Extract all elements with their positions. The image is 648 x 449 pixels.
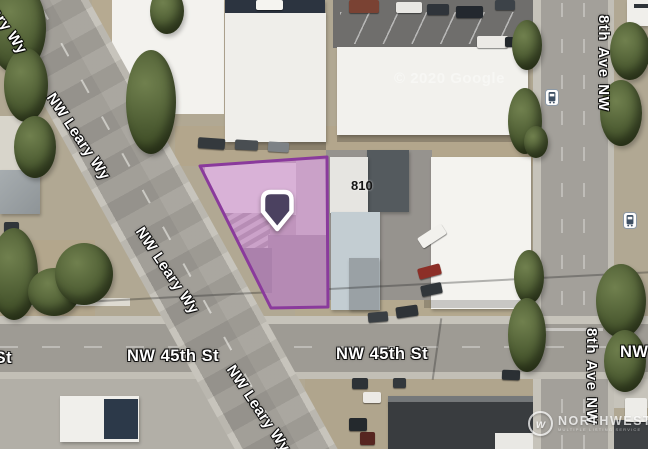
nwmls-monogram-icon: w <box>528 411 553 436</box>
nwmls-watermark: w NORTHWEST MULTIPLE LISTING SERVICE <box>528 411 648 436</box>
car <box>495 0 515 10</box>
car <box>235 139 258 150</box>
car <box>360 432 375 445</box>
street-label-45th-partial: NW 45th St <box>0 349 12 368</box>
google-attribution: © 2020 Google <box>394 70 505 87</box>
tree-canopy <box>596 264 646 338</box>
solar-panels <box>104 399 138 439</box>
street-label-45th: NW 45th St <box>127 347 219 366</box>
street-label-45th: NW 45th St <box>336 345 428 364</box>
nwmls-name: NORTHWEST <box>558 415 648 427</box>
tree-canopy <box>55 243 113 305</box>
car <box>502 370 520 381</box>
truck <box>349 0 379 13</box>
sidewalk <box>0 372 648 379</box>
bus-stop-icon <box>545 89 559 106</box>
car <box>268 141 289 152</box>
building-roof <box>349 258 379 310</box>
car <box>456 6 483 18</box>
building-number-label: 810 <box>351 178 373 193</box>
tree-canopy <box>524 126 548 158</box>
tree-canopy <box>508 298 546 372</box>
car <box>349 418 367 431</box>
car <box>393 378 406 388</box>
tree-canopy <box>610 22 648 80</box>
building-roof-dark <box>367 150 409 212</box>
tree-canopy <box>512 20 542 70</box>
street-label-45th-partial: NW 45th St <box>620 343 648 362</box>
car <box>363 392 381 403</box>
box-truck <box>477 36 508 48</box>
tree-canopy <box>126 50 176 154</box>
car <box>396 2 422 13</box>
car <box>256 0 283 10</box>
tree-canopy <box>514 250 544 304</box>
car <box>427 4 449 15</box>
roof-vent <box>634 4 648 8</box>
building-roof <box>337 47 528 135</box>
road-45th-st <box>0 324 648 372</box>
building-roof <box>225 13 326 142</box>
tree-canopy <box>14 116 56 178</box>
sidewalk <box>533 0 541 449</box>
satellite-map[interactable]: NW Leary Wy NW Leary Wy NW Leary Wy NW L… <box>0 0 648 449</box>
car <box>368 311 389 323</box>
tree-canopy <box>4 48 48 122</box>
car <box>198 137 226 150</box>
street-label-8th-ave: 8th Ave NW <box>595 15 612 112</box>
bus-stop-icon <box>623 212 637 229</box>
nwmls-tagline: MULTIPLE LISTING SERVICE <box>558 427 648 432</box>
car <box>352 378 368 389</box>
